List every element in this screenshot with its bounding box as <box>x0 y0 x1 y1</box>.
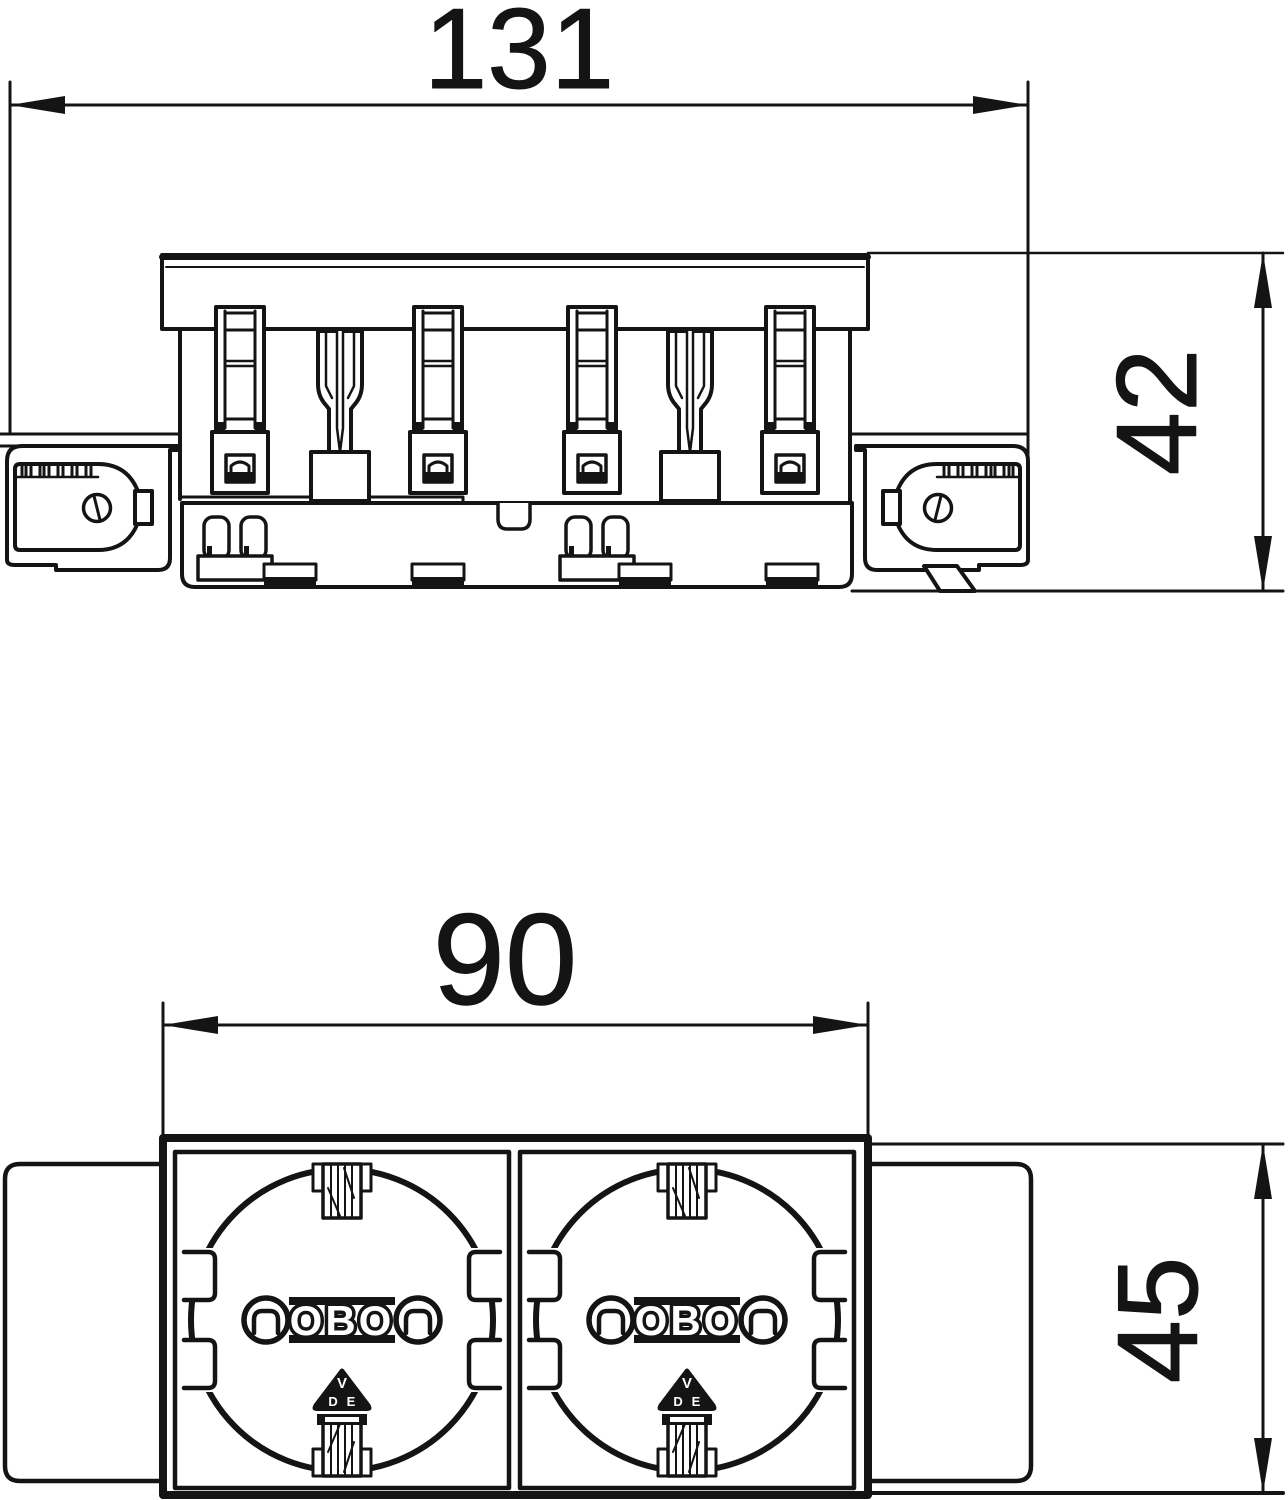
vde-letter-e: E <box>347 1394 356 1409</box>
snap-foot <box>766 564 818 588</box>
dim-90-label: 90 <box>433 886 578 1032</box>
contact-pin <box>661 331 719 501</box>
vde-letter-d: D <box>328 1394 337 1409</box>
technical-drawing: 131 42 <box>0 0 1288 1500</box>
terminal-tower <box>762 307 818 493</box>
trunking-panel-left <box>5 1164 163 1481</box>
front-view: 90 45 OBO V D E <box>5 886 1283 1495</box>
vde-letter-d: D <box>673 1394 682 1409</box>
terminal-tower <box>212 307 268 493</box>
snap-foot <box>412 564 464 588</box>
vde-letter-v: V <box>337 1375 347 1392</box>
dim-45-label: 45 <box>1095 1257 1222 1384</box>
snap-foot <box>619 564 671 588</box>
dimension-90: 90 <box>163 886 868 1138</box>
trunking-panel-right <box>868 1164 1031 1481</box>
center-tab <box>498 503 530 529</box>
vde-letter-v: V <box>682 1375 692 1392</box>
mounting-claw-right <box>856 446 1028 570</box>
snap-foot <box>264 564 316 588</box>
technical-drawing-page: 131 42 <box>0 0 1288 1500</box>
vde-letter-e: E <box>692 1394 701 1409</box>
dim-131-label: 131 <box>424 0 614 113</box>
obo-logo-right: OBO <box>635 1297 740 1344</box>
terminal-tower <box>564 307 620 493</box>
socket-module-side <box>0 255 1028 591</box>
dimension-131: 131 <box>10 0 1028 462</box>
side-view: 131 42 <box>0 0 1283 591</box>
dim-42-label: 42 <box>1094 349 1221 476</box>
mounting-claw-left <box>7 446 179 570</box>
terminal-tower <box>410 307 466 493</box>
contact-pin <box>311 331 369 501</box>
obo-logo-left: OBO <box>290 1297 395 1344</box>
